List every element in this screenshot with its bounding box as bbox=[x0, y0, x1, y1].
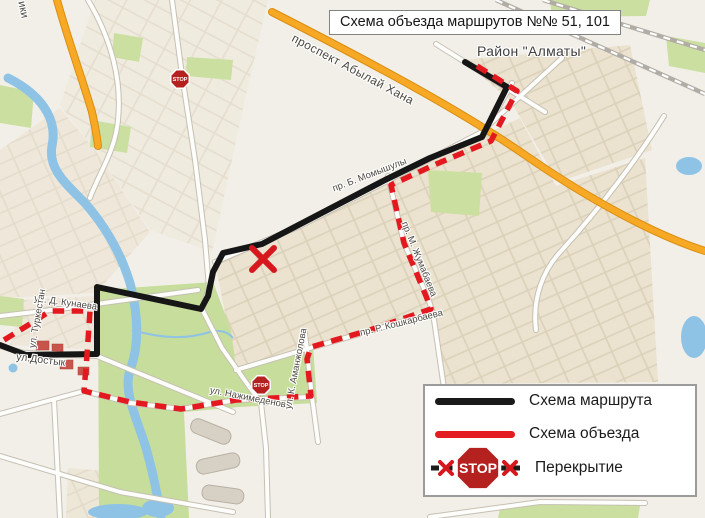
svg-text:STOP: STOP bbox=[459, 460, 497, 476]
detour-line-icon bbox=[435, 431, 515, 438]
stop-sign-icon: STOP bbox=[171, 70, 189, 88]
legend: Схема маршрута Схема объезда STOP Перекр… bbox=[423, 384, 697, 497]
detour-scheme-map: STOP STOP проспект Абылай Хана Район "Ал… bbox=[0, 0, 705, 518]
legend-item-closure: Перекрытие bbox=[535, 459, 623, 477]
route-line-icon bbox=[435, 398, 515, 405]
legend-item-route: Схема маршрута bbox=[529, 392, 652, 410]
svg-text:STOP: STOP bbox=[254, 383, 269, 389]
district-label: Район "Алматы" bbox=[477, 43, 586, 59]
closure-stop-icon: STOP bbox=[427, 441, 529, 495]
stop-sign-icon: STOP bbox=[252, 376, 270, 394]
legend-item-detour: Схема объезда bbox=[529, 425, 639, 443]
title-box: Схема объезда маршрутов №№ 51, 101 bbox=[329, 10, 621, 35]
svg-text:STOP: STOP bbox=[173, 77, 188, 83]
